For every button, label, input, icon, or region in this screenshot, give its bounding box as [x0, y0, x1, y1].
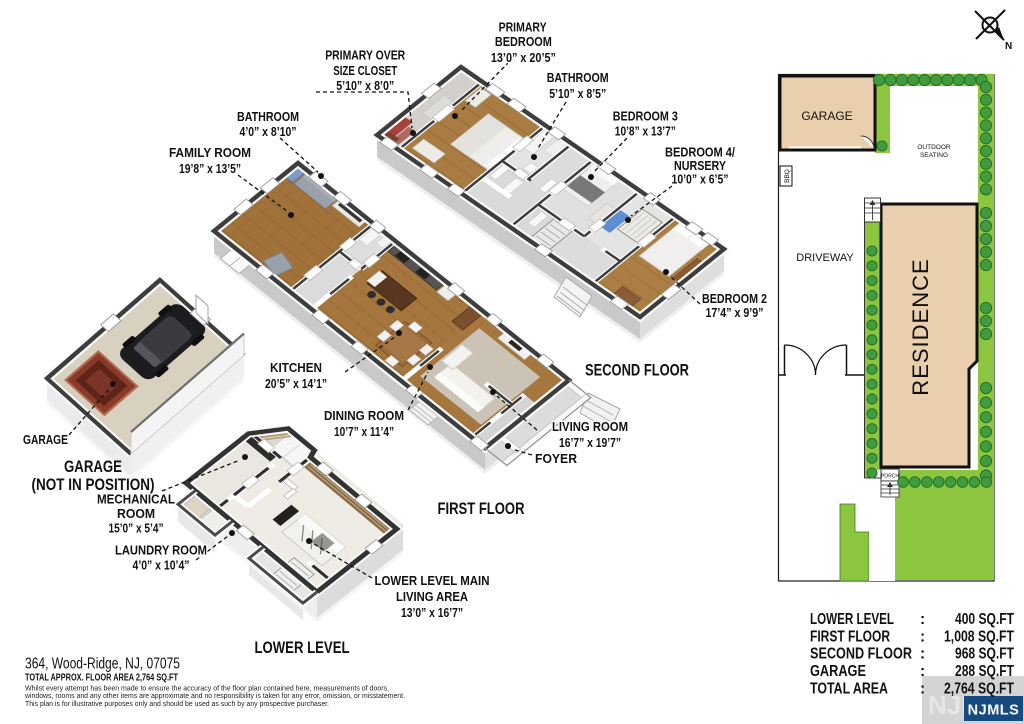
svg-text:(NOT IN POSITION): (NOT IN POSITION): [32, 475, 155, 494]
svg-text:10’0” x 6’5”: 10’0” x 6’5”: [672, 172, 729, 187]
svg-text:SECOND FLOOR: SECOND FLOOR: [810, 646, 912, 663]
svg-text:PORCH: PORCH: [881, 474, 899, 480]
svg-text:TOTAL AREA: TOTAL AREA: [810, 680, 888, 697]
svg-text:FAMILY ROOM: FAMILY ROOM: [169, 145, 251, 160]
svg-text:13’0” x 16’7”: 13’0” x 16’7”: [401, 605, 463, 620]
svg-text:BEDROOM: BEDROOM: [495, 34, 552, 49]
svg-text:BATHROOM: BATHROOM: [547, 70, 609, 85]
svg-text:2,764 SQ.FT: 2,764 SQ.FT: [944, 680, 1014, 697]
svg-text:KITCHEN: KITCHEN: [270, 360, 322, 375]
svg-text:LAUNDRY ROOM: LAUNDRY ROOM: [115, 543, 207, 558]
svg-text:10’8” x 13’7”: 10’8” x 13’7”: [615, 123, 676, 138]
svg-text:windows, rooms and any other i: windows, rooms and any other items are a…: [24, 693, 405, 700]
svg-text:13’0” x 20’5”: 13’0” x 20’5”: [491, 50, 556, 65]
svg-text:GARAGE: GARAGE: [810, 663, 866, 680]
svg-text:TOTAL APPROX. FLOOR AREA 2,764: TOTAL APPROX. FLOOR AREA 2,764 SQ.FT: [25, 672, 178, 683]
svg-text:SIZE CLOSET: SIZE CLOSET: [333, 63, 397, 78]
svg-text:16’7” x 19’7”: 16’7” x 19’7”: [559, 435, 621, 450]
svg-text::: :: [920, 680, 925, 697]
svg-text::: :: [920, 611, 925, 628]
svg-text:BATHROOM: BATHROOM: [237, 109, 299, 124]
svg-text:PRIMARY: PRIMARY: [499, 19, 547, 34]
svg-text:FOYER: FOYER: [535, 451, 577, 466]
svg-text:N: N: [1005, 41, 1012, 52]
svg-text:15’0” x 5’4”: 15’0” x 5’4”: [109, 521, 164, 536]
svg-text:288 SQ.FT: 288 SQ.FT: [955, 663, 1014, 680]
svg-text:SEATING: SEATING: [920, 152, 948, 159]
svg-text:LIVING AREA: LIVING AREA: [396, 589, 468, 604]
svg-text:LOWER LEVEL MAIN: LOWER LEVEL MAIN: [375, 573, 490, 588]
svg-text:1,008 SQ.FT: 1,008 SQ.FT: [944, 628, 1014, 645]
svg-text:BBQ: BBQ: [784, 169, 791, 183]
svg-text:ROOM: ROOM: [117, 506, 155, 521]
svg-text:GARAGE: GARAGE: [801, 109, 852, 123]
svg-text:19’8” x 13’5”: 19’8” x 13’5”: [179, 161, 241, 176]
svg-text:GARAGE: GARAGE: [64, 457, 122, 476]
svg-text:DRIVEWAY: DRIVEWAY: [796, 252, 854, 264]
svg-text:364, Wood-Ridge, NJ, 07075: 364, Wood-Ridge, NJ, 07075: [25, 655, 180, 672]
svg-text:5’10” x 8’5”: 5’10” x 8’5”: [549, 86, 606, 101]
svg-text:10’7” x 11’4”: 10’7” x 11’4”: [334, 424, 394, 439]
svg-text:LIVING ROOM: LIVING ROOM: [552, 419, 628, 434]
svg-text:SECOND FLOOR: SECOND FLOOR: [585, 361, 689, 380]
svg-text:FIRST FLOOR: FIRST FLOOR: [810, 628, 890, 645]
svg-text:4’0” x 8’10”: 4’0” x 8’10”: [240, 124, 297, 139]
svg-text:OUTDOOR: OUTDOOR: [917, 144, 951, 151]
svg-text:968 SQ.FT: 968 SQ.FT: [955, 646, 1014, 663]
svg-text:BEDROOM 2: BEDROOM 2: [702, 291, 767, 306]
svg-text::: :: [920, 646, 925, 663]
svg-text::: :: [920, 663, 925, 680]
svg-text:Whilst every attempt has been: Whilst every attempt has been made to en…: [25, 685, 389, 692]
svg-text:FIRST FLOOR: FIRST FLOOR: [438, 499, 525, 518]
svg-text:LOWER LEVEL: LOWER LEVEL: [810, 611, 894, 628]
svg-text:5’10” x 8’0”: 5’10” x 8’0”: [336, 78, 394, 93]
svg-text:PRIMARY OVER: PRIMARY OVER: [325, 48, 405, 63]
svg-text:RESIDENCE: RESIDENCE: [908, 258, 933, 395]
svg-text:20’5” x 14’1”: 20’5” x 14’1”: [265, 376, 327, 391]
svg-text:LOWER LEVEL: LOWER LEVEL: [255, 638, 350, 657]
svg-text:This plan is for illustrative: This plan is for illustrative purposes o…: [25, 701, 329, 708]
svg-text::: :: [920, 628, 925, 645]
svg-text:17’4” x 9’9”: 17’4” x 9’9”: [706, 305, 764, 320]
svg-text:4’0” x 10’4”: 4’0” x 10’4”: [133, 557, 190, 572]
svg-text:BEDROOM 3: BEDROOM 3: [613, 108, 678, 123]
svg-text:NJMLS: NJMLS: [968, 703, 1020, 719]
svg-text:400 SQ.FT: 400 SQ.FT: [955, 611, 1014, 628]
svg-text:DINING ROOM: DINING ROOM: [324, 408, 404, 423]
svg-text:GARAGE: GARAGE: [23, 432, 68, 447]
